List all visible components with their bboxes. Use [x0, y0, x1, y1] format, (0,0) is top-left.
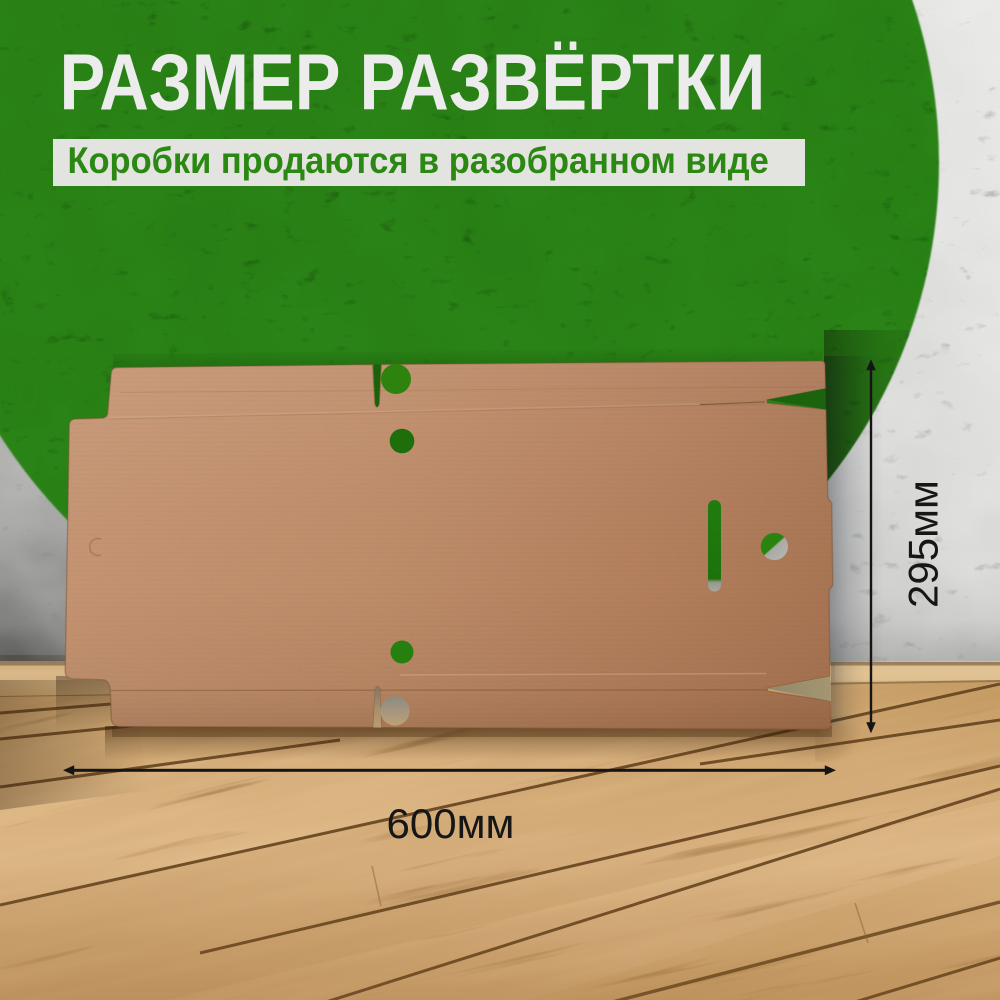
- svg-text:295мм: 295мм: [900, 480, 947, 608]
- svg-text:Коробки продаются в разобранно: Коробки продаются в разобранном виде: [68, 140, 769, 181]
- svg-text:600мм: 600мм: [387, 800, 515, 847]
- svg-text:РАЗМЕР РАЗВЁРТКИ: РАЗМЕР РАЗВЁРТКИ: [60, 38, 766, 127]
